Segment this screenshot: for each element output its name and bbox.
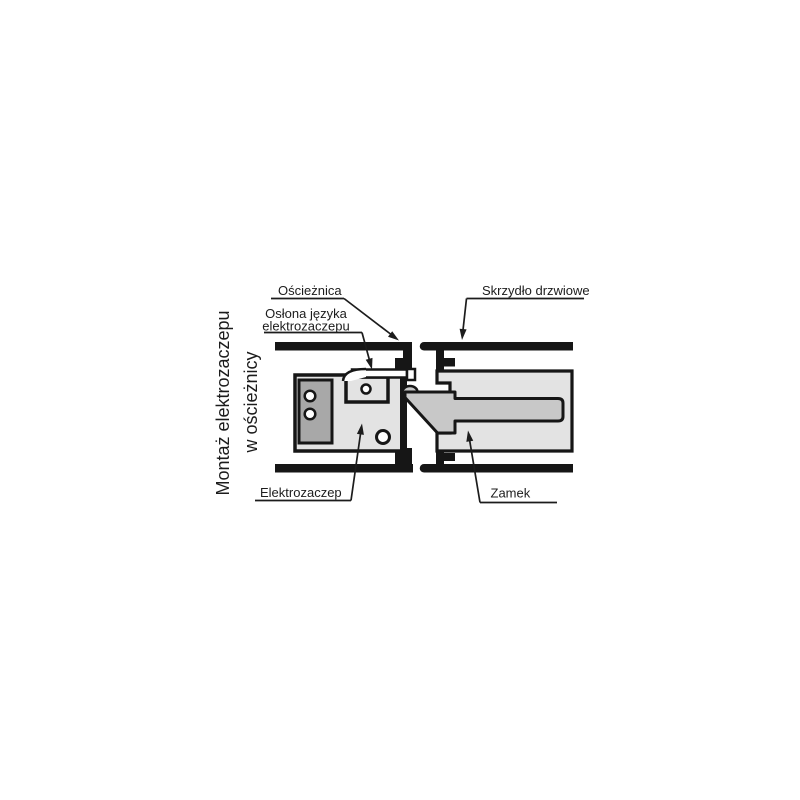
frame-label: Ościeżnica — [278, 283, 342, 298]
strike-keeper-hole — [362, 385, 371, 394]
door-leaf-wall-profile-top — [420, 342, 573, 371]
latch-cover-arrowhead — [366, 358, 373, 370]
door-leaf-wall-profile-bottom — [420, 451, 573, 473]
electric-strike-mounting-diagram: Ościeżnica Skrzydło drzwiowe Osłona języ… — [0, 0, 800, 800]
strike-faceplate — [400, 371, 407, 452]
strike-mounting-hole-2 — [305, 409, 316, 420]
electric-strike-label: Elektrozaczep — [260, 485, 342, 500]
lock-label: Zamek — [491, 486, 531, 501]
door-leaf-arrowhead — [460, 329, 467, 340]
strike-screw-hole — [377, 431, 390, 444]
strike-mounting-hole-1 — [305, 391, 316, 402]
latch-cover-label-line2: elektrozaczepu — [262, 319, 349, 334]
door-leaf-label: Skrzydło drzwiowe — [482, 283, 590, 298]
frame-wall-profile-top — [275, 342, 412, 371]
diagram-title-line2: w ościeżnicy — [241, 351, 261, 453]
diagram-title-line1: Montaż elektrozaczepu — [213, 310, 233, 495]
diagram-canvas: Ościeżnica Skrzydło drzwiowe Osłona języ… — [0, 0, 800, 800]
